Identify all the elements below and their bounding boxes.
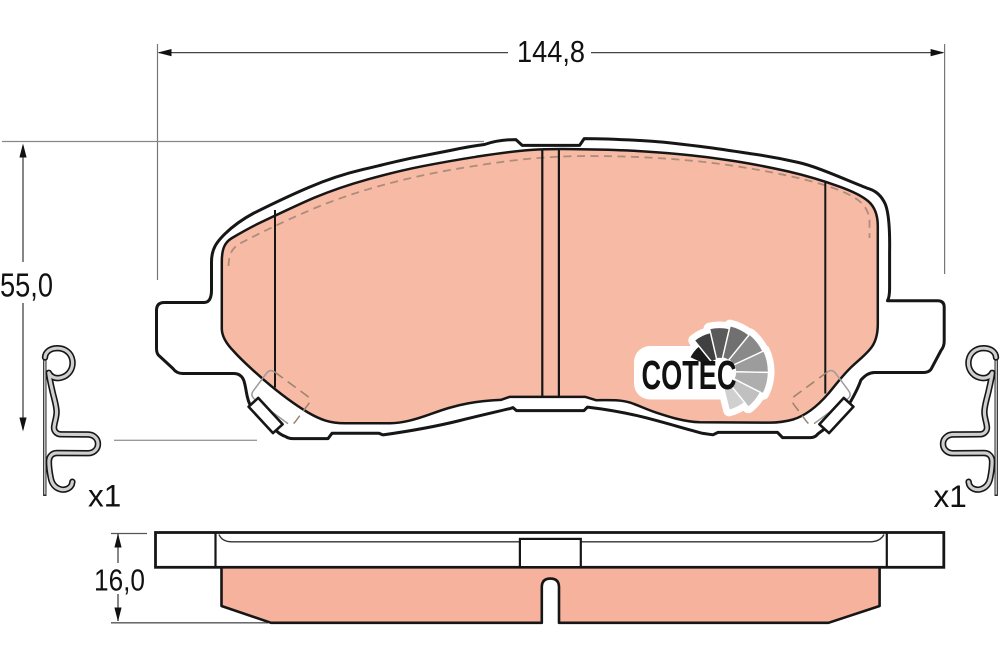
svg-text:x1: x1 <box>934 478 967 514</box>
svg-text:16,0: 16,0 <box>94 563 145 598</box>
svg-text:x1: x1 <box>88 478 121 514</box>
svg-text:COTEC: COTEC <box>642 352 737 398</box>
svg-text:55,0: 55,0 <box>0 267 53 304</box>
svg-text:144,8: 144,8 <box>517 34 585 69</box>
